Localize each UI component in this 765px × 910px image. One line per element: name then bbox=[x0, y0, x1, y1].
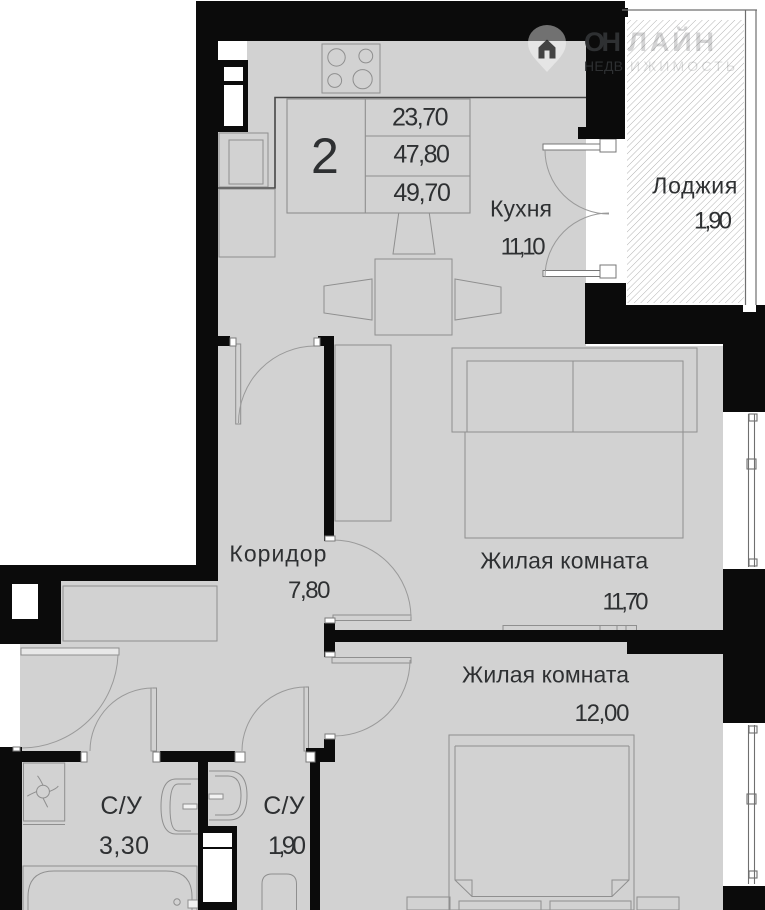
svg-text:Лоджия: Лоджия bbox=[652, 173, 737, 199]
svg-text:С/У: С/У bbox=[100, 792, 142, 820]
svg-text:ИЖИМОСТЬ: ИЖИМОСТЬ bbox=[630, 58, 735, 74]
svg-text:2: 2 bbox=[311, 128, 339, 184]
svg-text:Жилая комната: Жилая комната bbox=[462, 661, 629, 687]
svg-text:1,90: 1,90 bbox=[268, 832, 306, 860]
svg-text:С/У: С/У bbox=[263, 792, 305, 820]
svg-text:49,70: 49,70 bbox=[393, 179, 451, 207]
svg-text:3,30: 3,30 bbox=[99, 832, 149, 860]
svg-text:11,10: 11,10 bbox=[501, 234, 546, 261]
svg-text:ОН: ОН bbox=[584, 27, 621, 57]
svg-text:12,00: 12,00 bbox=[575, 700, 630, 727]
svg-text:1,90: 1,90 bbox=[694, 208, 732, 235]
svg-text:НЕДВ: НЕДВ bbox=[584, 58, 623, 74]
svg-text:7,80: 7,80 bbox=[288, 577, 331, 604]
svg-text:47,80: 47,80 bbox=[393, 141, 450, 169]
svg-text:Кухня: Кухня bbox=[490, 195, 552, 221]
svg-text:23,70: 23,70 bbox=[392, 104, 449, 132]
svg-text:11,70: 11,70 bbox=[603, 588, 649, 615]
svg-text:Жилая комната: Жилая комната bbox=[480, 548, 648, 574]
svg-text:Коридор: Коридор bbox=[229, 540, 326, 566]
